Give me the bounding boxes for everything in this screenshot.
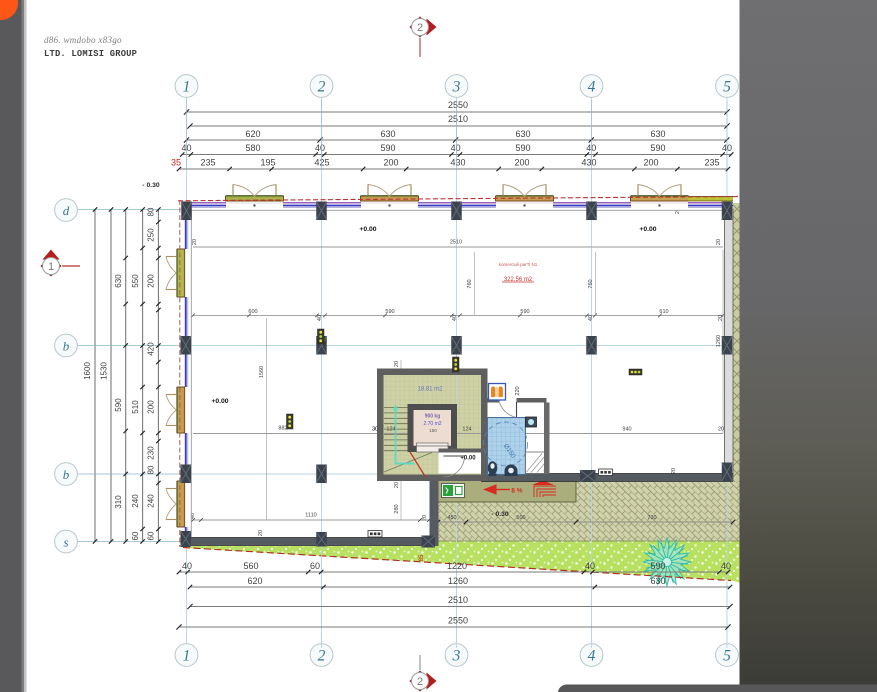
- svg-text:20: 20: [394, 361, 400, 367]
- svg-text:425: 425: [314, 158, 329, 168]
- svg-text:610: 610: [659, 309, 668, 315]
- svg-text:150: 150: [429, 428, 437, 433]
- svg-text:5: 5: [723, 648, 731, 665]
- svg-text:1600: 1600: [83, 362, 92, 380]
- svg-text:590: 590: [114, 398, 123, 412]
- svg-text:40: 40: [585, 561, 595, 571]
- svg-text:40: 40: [588, 315, 594, 321]
- svg-text:730: 730: [647, 515, 656, 521]
- svg-text:2510: 2510: [448, 114, 468, 124]
- svg-text:630: 630: [650, 576, 665, 586]
- svg-text:630: 630: [515, 129, 530, 139]
- svg-text:35: 35: [171, 158, 181, 168]
- svg-text:590: 590: [515, 143, 530, 153]
- svg-text:500: 500: [516, 515, 525, 521]
- svg-text:1530: 1530: [100, 362, 109, 380]
- svg-text:s: s: [63, 535, 68, 550]
- svg-text:760: 760: [588, 279, 594, 288]
- svg-text:18.81 m2: 18.81 m2: [417, 387, 443, 393]
- svg-text:+0.00: +0.00: [639, 226, 656, 233]
- svg-text:580: 580: [245, 143, 260, 153]
- svg-text:220: 220: [515, 386, 521, 395]
- svg-text:85: 85: [419, 554, 425, 561]
- svg-text:4: 4: [588, 648, 596, 665]
- svg-text:3: 3: [452, 648, 461, 665]
- svg-text:240: 240: [131, 494, 140, 508]
- svg-text:600: 600: [248, 309, 257, 315]
- svg-text:60: 60: [310, 561, 320, 571]
- svg-text:2: 2: [417, 676, 423, 688]
- svg-text:40: 40: [317, 315, 323, 321]
- svg-text:- 0.30: - 0.30: [142, 182, 160, 189]
- svg-text:200: 200: [383, 158, 398, 168]
- svg-text:60: 60: [147, 531, 156, 540]
- svg-text:230: 230: [147, 446, 156, 460]
- svg-text:760: 760: [467, 279, 473, 288]
- svg-text:d: d: [63, 203, 70, 218]
- svg-text:80: 80: [147, 207, 156, 216]
- svg-text:+0.00: +0.00: [460, 456, 476, 462]
- svg-text:2510: 2510: [448, 595, 468, 605]
- svg-text:+0.00: +0.00: [359, 226, 376, 233]
- svg-text:430: 430: [450, 158, 465, 168]
- svg-text:20: 20: [258, 530, 264, 536]
- svg-text:40: 40: [721, 561, 731, 571]
- svg-text:240: 240: [147, 494, 156, 508]
- svg-text:5: 5: [723, 79, 731, 96]
- svg-text:590: 590: [650, 561, 665, 571]
- svg-text:2550: 2550: [448, 616, 468, 626]
- svg-text:- 0.30: - 0.30: [491, 511, 509, 518]
- svg-text:b: b: [63, 339, 70, 354]
- svg-text:20: 20: [192, 239, 198, 245]
- svg-text:590: 590: [650, 143, 665, 153]
- svg-text:200: 200: [514, 158, 529, 168]
- svg-text:2510: 2510: [450, 240, 462, 246]
- svg-text:2.70 m2: 2.70 m2: [423, 421, 441, 427]
- svg-text:80: 80: [147, 465, 156, 474]
- svg-text:620: 620: [247, 576, 262, 586]
- svg-text:2: 2: [417, 22, 423, 34]
- svg-text:+0.00: +0.00: [211, 398, 228, 405]
- svg-text:450: 450: [447, 515, 456, 521]
- svg-text:1110: 1110: [305, 513, 316, 519]
- svg-text:1560: 1560: [259, 366, 265, 378]
- svg-text:510: 510: [131, 400, 140, 414]
- svg-text:b: b: [63, 467, 70, 482]
- svg-text:2550: 2550: [448, 100, 468, 110]
- svg-text:124: 124: [462, 427, 471, 433]
- svg-text:560: 560: [243, 561, 258, 571]
- svg-text:1: 1: [183, 648, 191, 665]
- svg-text:40: 40: [315, 143, 325, 153]
- svg-text:d86. wmdobo x83go: d86. wmdobo x83go: [44, 35, 122, 45]
- svg-text:620: 620: [245, 129, 260, 139]
- svg-text:40: 40: [182, 561, 192, 571]
- svg-text:200: 200: [643, 158, 658, 168]
- svg-text:30: 30: [372, 427, 378, 433]
- svg-text:235: 235: [200, 158, 215, 168]
- svg-text:40: 40: [451, 143, 461, 153]
- svg-text:1220: 1220: [447, 561, 467, 571]
- svg-text:60: 60: [131, 531, 140, 540]
- svg-text:20: 20: [716, 239, 722, 245]
- svg-text:2: 2: [318, 648, 326, 665]
- svg-text:LTD. LOMISI GROUP: LTD. LOMISI GROUP: [44, 49, 137, 59]
- svg-text:550: 550: [131, 274, 140, 288]
- svg-text:1260: 1260: [716, 335, 722, 347]
- svg-text:630: 630: [650, 129, 665, 139]
- svg-text:40: 40: [452, 315, 458, 321]
- svg-text:940: 940: [622, 427, 631, 433]
- svg-text:200: 200: [147, 274, 156, 288]
- svg-text:420: 420: [147, 342, 156, 356]
- svg-text:590: 590: [380, 143, 395, 153]
- svg-text:900 kg: 900 kg: [425, 414, 441, 420]
- svg-text:2: 2: [318, 79, 326, 96]
- svg-text:20: 20: [394, 482, 400, 488]
- svg-text:124: 124: [386, 427, 395, 433]
- svg-text:3: 3: [452, 79, 461, 96]
- svg-text:882: 882: [278, 426, 287, 432]
- svg-text:komerciuli parTi N1: komerciuli parTi N1: [499, 262, 538, 267]
- svg-text:250: 250: [147, 228, 156, 242]
- svg-text:1: 1: [48, 261, 54, 273]
- svg-text:280: 280: [394, 504, 400, 513]
- svg-text:195: 195: [260, 158, 275, 168]
- svg-text:590: 590: [385, 309, 394, 315]
- svg-text:310: 310: [114, 495, 123, 509]
- svg-text:630: 630: [380, 129, 395, 139]
- svg-text:20: 20: [718, 427, 724, 433]
- svg-text:630: 630: [114, 274, 123, 288]
- svg-text:590: 590: [520, 309, 529, 315]
- svg-text:200: 200: [147, 400, 156, 414]
- svg-text:430: 430: [581, 158, 596, 168]
- svg-text:8 %: 8 %: [511, 488, 522, 495]
- svg-text:4: 4: [588, 79, 596, 96]
- svg-text:1: 1: [183, 79, 191, 96]
- svg-text:235: 235: [704, 158, 719, 168]
- svg-text:1260: 1260: [448, 576, 468, 586]
